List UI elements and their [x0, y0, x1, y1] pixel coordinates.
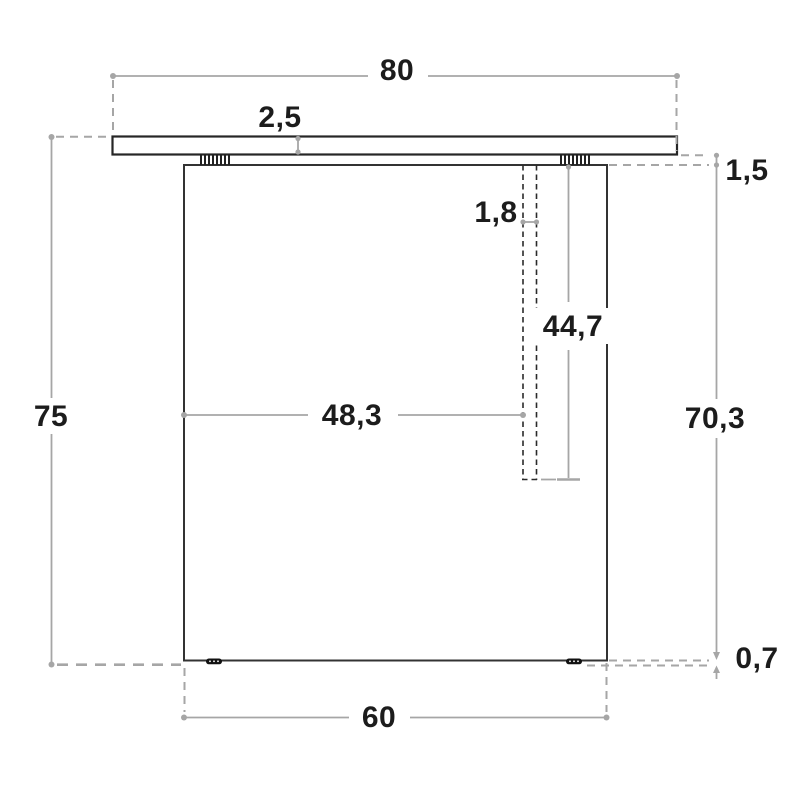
dim-label-top-width: 80 — [380, 54, 414, 87]
foot-right — [566, 659, 582, 665]
connector-hatch-right — [561, 155, 589, 166]
dim-panel-height: 70,3 — [674, 165, 758, 660]
connector-hatch-left — [201, 155, 229, 166]
dim-label-top-gap: 1,5 — [725, 154, 768, 187]
dim-label-slot-offset: 48,3 — [322, 399, 382, 432]
dim-top-gap: 1,5 — [609, 153, 769, 187]
dim-label-slot-width: 1,8 — [474, 196, 517, 229]
dim-overall-height: 75 — [32, 134, 181, 668]
drawing-svg: 80 2,5 1,5 1,8 44,7 — [0, 0, 800, 800]
technical-drawing-canvas: 80 2,5 1,5 1,8 44,7 — [0, 0, 800, 800]
dim-label-top-thickness: 2,5 — [258, 101, 301, 134]
dim-base-width: 60 — [181, 663, 610, 734]
tabletop — [113, 137, 678, 155]
foot-left — [206, 659, 222, 665]
dim-label-slot-depth: 44,7 — [543, 310, 603, 343]
dim-label-base-width: 60 — [362, 701, 396, 734]
dim-label-panel-height: 70,3 — [685, 402, 745, 435]
dim-label-overall-height: 75 — [34, 400, 68, 433]
dim-foot-height: 0,7 — [587, 642, 779, 679]
dim-label-foot-height: 0,7 — [735, 642, 778, 675]
